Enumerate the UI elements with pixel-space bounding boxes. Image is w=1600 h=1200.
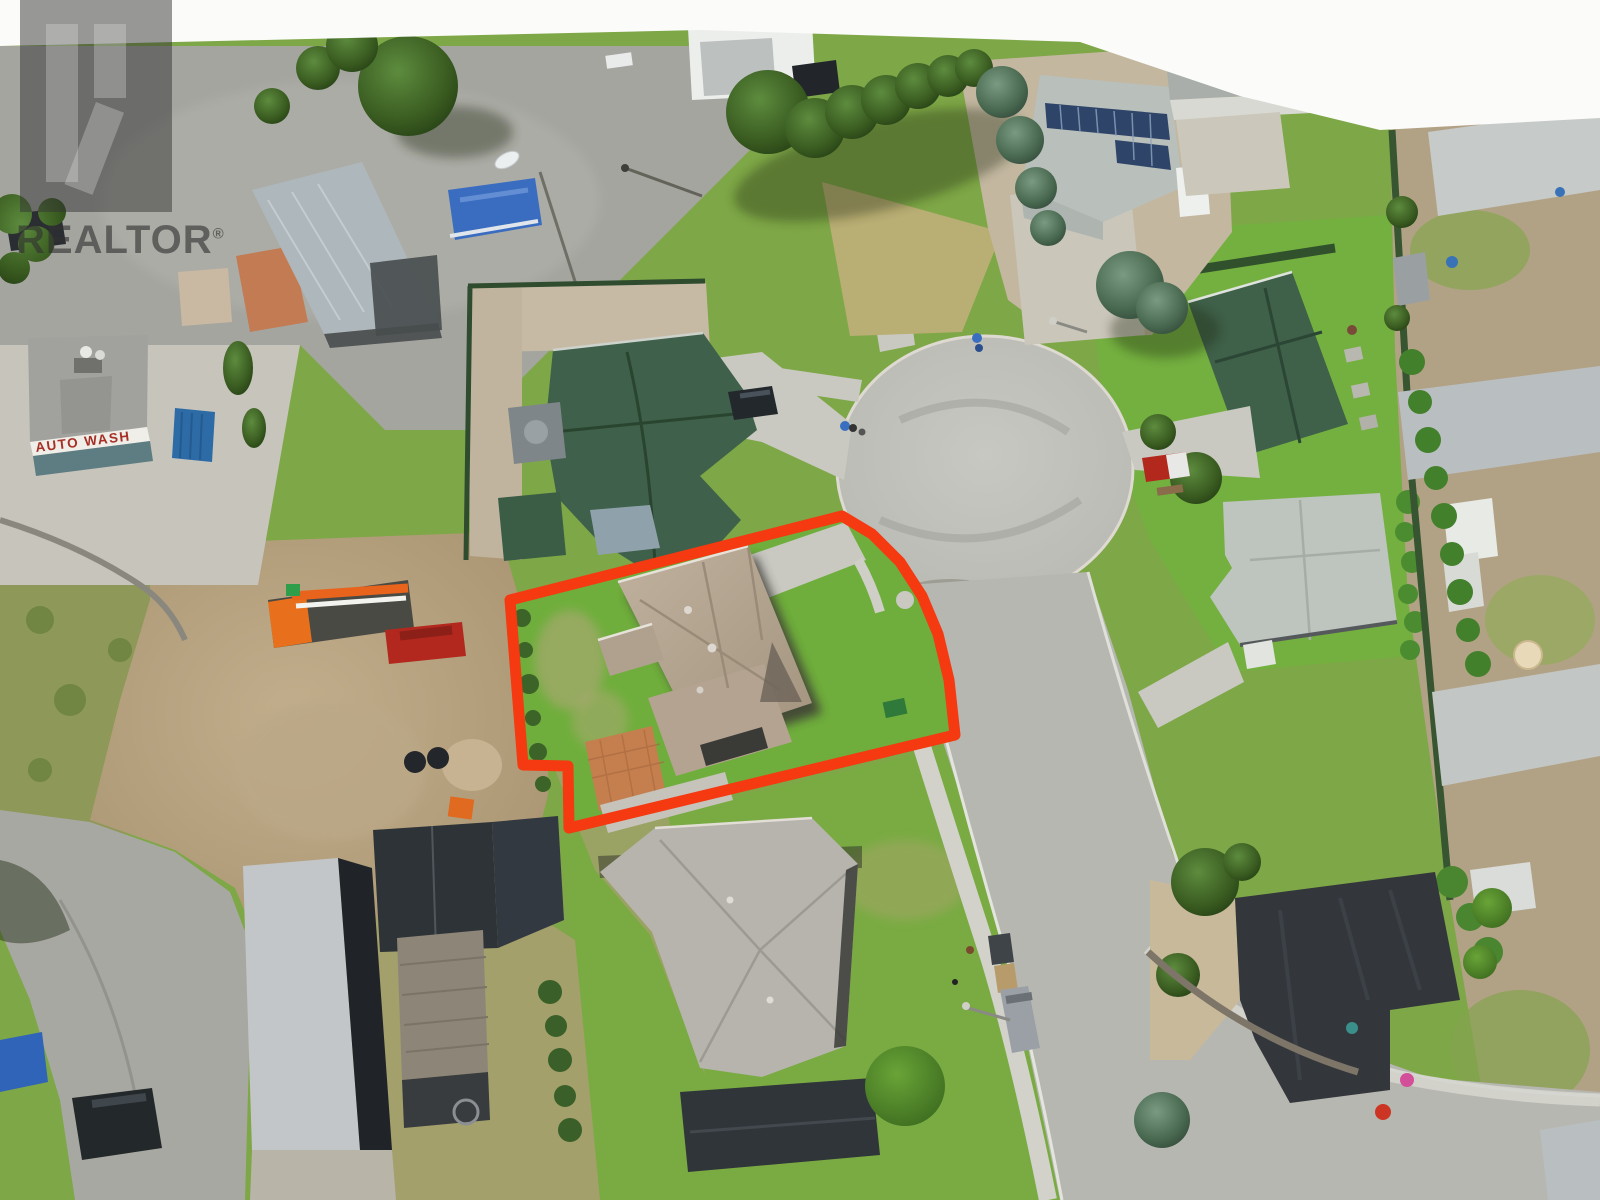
ne-driveway bbox=[1176, 112, 1290, 196]
realtor-wordmark: REALTOR® bbox=[16, 220, 216, 260]
shed bbox=[1393, 252, 1430, 306]
spruce bbox=[1030, 210, 1066, 246]
tree bbox=[1384, 305, 1410, 331]
pedestrian bbox=[849, 424, 857, 432]
blue-bin bbox=[972, 333, 982, 343]
utility-pole bbox=[621, 164, 629, 172]
bbq bbox=[1347, 325, 1357, 335]
blue-barrel bbox=[1446, 256, 1458, 268]
tree bbox=[254, 88, 290, 124]
dirt-bare-patch bbox=[235, 700, 425, 840]
mobile-home-apron bbox=[250, 1150, 396, 1200]
green-shed-roof bbox=[498, 492, 566, 561]
logo-r-top-bar bbox=[94, 24, 126, 98]
pedestrian bbox=[859, 429, 866, 436]
roof-vent bbox=[697, 687, 704, 694]
blue-tarp-object bbox=[0, 1032, 48, 1092]
patio-umbrella bbox=[1514, 641, 1542, 669]
tan-outbuilding bbox=[178, 268, 232, 326]
rooftop-unit bbox=[74, 358, 102, 373]
red-yard-item bbox=[1375, 1104, 1391, 1120]
bright-tree bbox=[865, 1046, 945, 1126]
spruce bbox=[1134, 1092, 1190, 1148]
conifer bbox=[223, 341, 253, 395]
tree bbox=[1386, 196, 1418, 228]
pink-yard-item bbox=[1400, 1073, 1414, 1087]
bush bbox=[1463, 945, 1497, 979]
roof-vent bbox=[727, 897, 734, 904]
conifer bbox=[242, 408, 266, 448]
light-roof bbox=[1210, 493, 1397, 645]
registered-mark: ® bbox=[213, 226, 225, 243]
gable-end bbox=[590, 505, 660, 555]
white-shed bbox=[1243, 640, 1276, 669]
aerial-photo: AUTO WASH bbox=[0, 0, 1600, 1200]
streetlight-head bbox=[962, 1002, 970, 1010]
aerial-scene: AUTO WASH bbox=[0, 0, 1600, 1200]
yard-rock bbox=[896, 591, 914, 609]
pedestrian bbox=[966, 946, 974, 954]
boom-tip bbox=[286, 584, 300, 596]
autowash-roof-patch bbox=[60, 376, 112, 434]
pickup bbox=[988, 933, 1014, 965]
spruce bbox=[1015, 167, 1057, 209]
blue-barrel bbox=[1555, 187, 1565, 197]
bush bbox=[1472, 888, 1512, 928]
spruce bbox=[976, 66, 1028, 118]
gazebo-top bbox=[524, 420, 548, 444]
tree bbox=[1140, 414, 1176, 450]
dog bbox=[952, 979, 958, 985]
shed-roof bbox=[397, 930, 488, 1080]
realtor-r-logo-icon bbox=[20, 0, 172, 212]
dark-suv bbox=[728, 386, 778, 420]
blue-bin bbox=[840, 421, 850, 431]
car-windshield bbox=[1006, 996, 1032, 1000]
truck-canopy bbox=[1166, 452, 1190, 479]
roof-vent bbox=[708, 644, 717, 653]
dirt-mound bbox=[442, 739, 502, 791]
roof-vent bbox=[95, 350, 105, 360]
orange-equipment bbox=[448, 796, 475, 819]
spruce bbox=[996, 116, 1044, 164]
blue-dumpster bbox=[172, 408, 215, 462]
pedestrian bbox=[975, 344, 983, 352]
teal-yard-item bbox=[1346, 1022, 1358, 1034]
roof-vent bbox=[684, 606, 692, 614]
spruce bbox=[1136, 282, 1188, 334]
mobile-home bbox=[1540, 1120, 1600, 1200]
tree bbox=[1223, 843, 1261, 881]
roof-vent bbox=[80, 346, 92, 358]
streetlight-head bbox=[1049, 317, 1057, 325]
roof-vent bbox=[767, 997, 774, 1004]
realtor-watermark: REALTOR® bbox=[16, 0, 216, 260]
suv-roofline bbox=[400, 630, 452, 636]
park-lawn bbox=[1410, 210, 1530, 290]
realtor-brand-text: REALTOR bbox=[16, 218, 213, 262]
small-hut-roof bbox=[370, 255, 442, 336]
